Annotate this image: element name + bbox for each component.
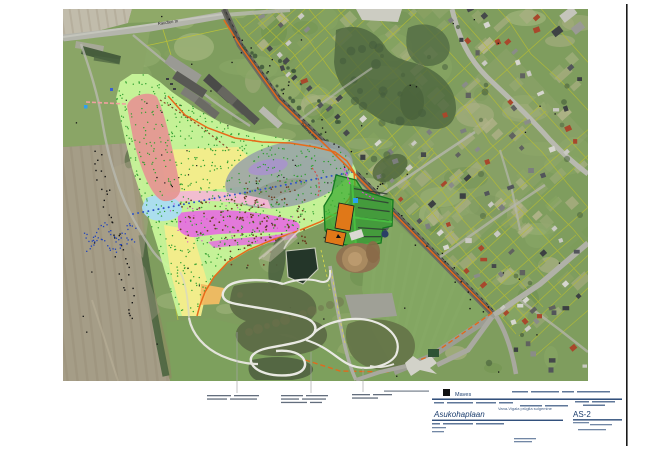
svg-text:AS-2: AS-2 (573, 410, 591, 419)
svg-text:Asukohaplaan: Asukohaplaan (433, 410, 485, 419)
svg-text:Vana-Vigala prügila sulgemine: Vana-Vigala prügila sulgemine (498, 406, 553, 411)
svg-text:Maves: Maves (455, 392, 471, 398)
